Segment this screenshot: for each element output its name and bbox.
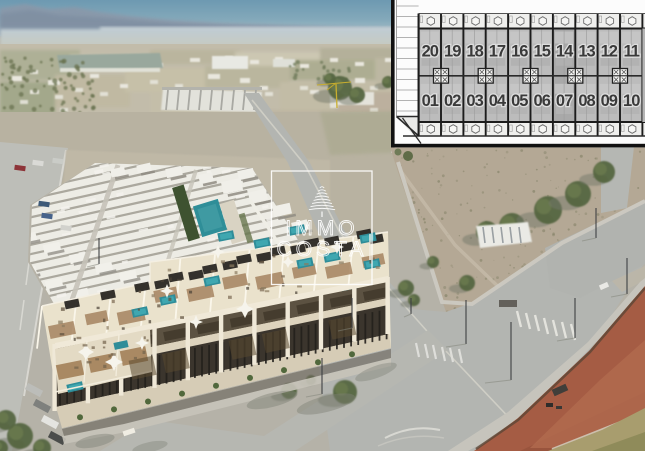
svg-text:19: 19 bbox=[444, 43, 461, 61]
svg-text:20: 20 bbox=[422, 43, 439, 61]
svg-text:18: 18 bbox=[466, 43, 483, 61]
svg-text:02: 02 bbox=[444, 92, 461, 110]
svg-text:12: 12 bbox=[601, 43, 618, 61]
svg-text:11: 11 bbox=[623, 43, 639, 61]
svg-text:08: 08 bbox=[578, 92, 595, 110]
svg-text:15: 15 bbox=[534, 43, 551, 61]
svg-text:09: 09 bbox=[601, 92, 618, 110]
svg-text:16: 16 bbox=[511, 43, 528, 61]
svg-text:IMMO: IMMO bbox=[285, 217, 358, 240]
svg-text:10: 10 bbox=[623, 92, 640, 110]
svg-text:03: 03 bbox=[466, 92, 483, 110]
svg-text:06: 06 bbox=[534, 92, 551, 110]
svg-text:07: 07 bbox=[556, 92, 573, 110]
svg-text:04: 04 bbox=[489, 92, 507, 110]
svg-text:14: 14 bbox=[556, 43, 574, 61]
svg-text:13: 13 bbox=[578, 43, 595, 61]
svg-text:17: 17 bbox=[489, 43, 506, 61]
svg-text:01: 01 bbox=[422, 92, 439, 110]
svg-text:05: 05 bbox=[511, 92, 528, 110]
svg-text:COSTA: COSTA bbox=[277, 238, 368, 261]
